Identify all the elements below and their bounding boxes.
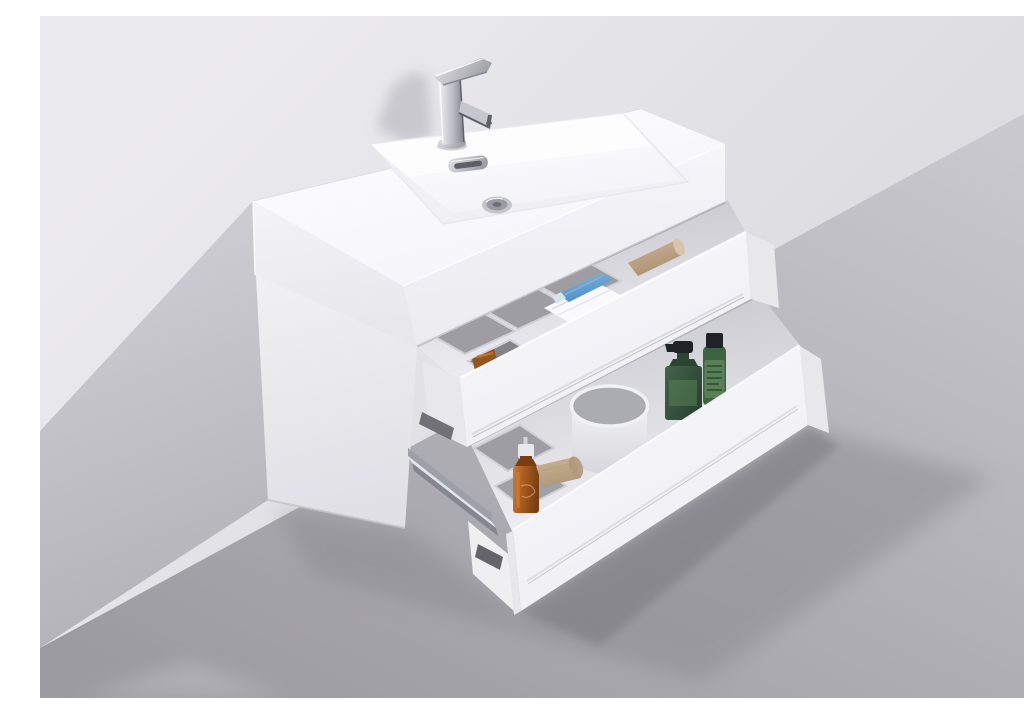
spray-bottle-nozzle [518, 444, 534, 458]
green-pump-head [673, 341, 693, 353]
green-bottle-cap [706, 333, 723, 348]
scene-canvas [40, 16, 1024, 698]
vanity-product-photo [40, 16, 1024, 698]
faucet-aerator [486, 121, 492, 125]
drain-center [493, 202, 502, 207]
green-pump-label [669, 380, 697, 406]
drain [482, 197, 512, 214]
